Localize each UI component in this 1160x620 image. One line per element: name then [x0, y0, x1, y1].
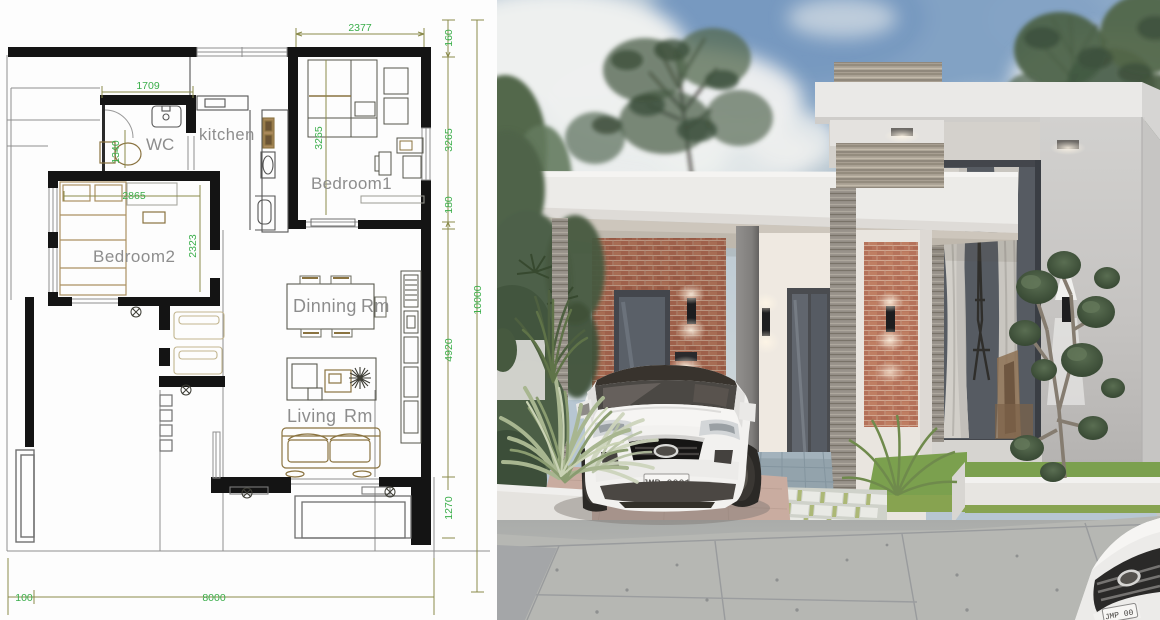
svg-text:10000: 10000	[472, 285, 484, 314]
svg-text:1270: 1270	[443, 496, 455, 520]
svg-text:3265: 3265	[443, 128, 455, 152]
svg-text:4920: 4920	[443, 338, 455, 362]
svg-text:kitchen: kitchen	[199, 126, 255, 144]
svg-text:160: 160	[443, 29, 455, 47]
svg-text:1709: 1709	[136, 80, 160, 92]
svg-text:Bedroom1: Bedroom1	[311, 174, 392, 193]
svg-text:Bedroom2: Bedroom2	[93, 247, 175, 266]
svg-text:2323: 2323	[187, 234, 199, 258]
svg-text:100: 100	[15, 592, 33, 604]
svg-text:180: 180	[443, 196, 455, 214]
svg-text:3265: 3265	[313, 126, 325, 150]
svg-text:Rm: Rm	[344, 406, 373, 426]
svg-text:2377: 2377	[348, 22, 372, 34]
svg-text:8000: 8000	[202, 592, 226, 604]
svg-text:2865: 2865	[122, 190, 146, 202]
svg-text:WC: WC	[146, 135, 174, 154]
svg-text:Dinning: Dinning	[293, 296, 357, 316]
svg-text:Rm: Rm	[361, 296, 390, 316]
svg-text:1340: 1340	[110, 140, 122, 164]
svg-text:Living: Living	[287, 406, 336, 426]
